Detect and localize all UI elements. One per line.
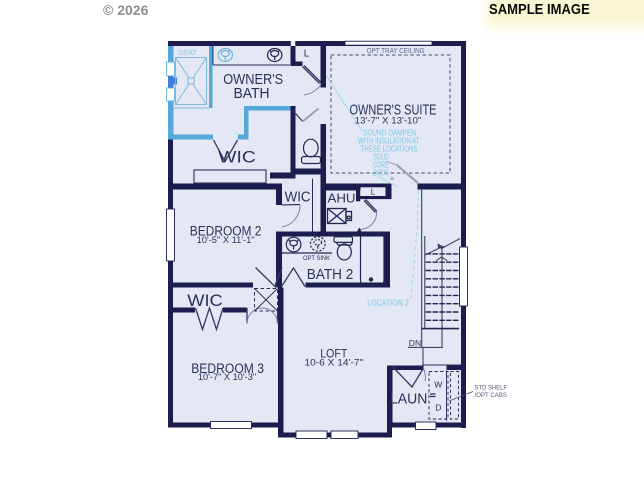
- svg-text:WIC: WIC: [285, 189, 311, 206]
- svg-text:W: W: [434, 380, 442, 390]
- svg-text:D: D: [435, 403, 441, 413]
- svg-text:STD SHELF: STD SHELF: [475, 385, 508, 392]
- svg-text:WIC: WIC: [187, 291, 222, 310]
- svg-text:WIC: WIC: [218, 148, 256, 167]
- svg-text:13'-7" X 13'-10": 13'-7" X 13'-10": [355, 115, 422, 125]
- svg-text:10'-7" X 10'-3": 10'-7" X 10'-3": [198, 372, 256, 382]
- svg-text:BATH: BATH: [234, 86, 270, 102]
- svg-text:L: L: [304, 49, 310, 60]
- svg-text:BATH 2: BATH 2: [307, 266, 354, 283]
- svg-text:10'-5" X 11'-1": 10'-5" X 11'-1": [197, 235, 255, 245]
- svg-text:OPT SINK: OPT SINK: [303, 255, 331, 262]
- svg-text:OPT TRAY CEILING: OPT TRAY CEILING: [367, 48, 425, 55]
- svg-text:L: L: [371, 188, 376, 197]
- svg-text:AHU: AHU: [328, 191, 356, 206]
- svg-text:THESE LOCATIONS: THESE LOCATIONS: [361, 145, 418, 154]
- svg-text:10-6 X 14'-7": 10-6 X 14'-7": [305, 358, 364, 369]
- svg-text:DN: DN: [409, 338, 421, 348]
- svg-text:/OPT CABS: /OPT CABS: [475, 392, 508, 399]
- svg-text:LAUN: LAUN: [390, 392, 427, 408]
- svg-text:LOCATION 2: LOCATION 2: [367, 299, 409, 308]
- svg-text:DOOR: DOOR: [373, 169, 388, 178]
- svg-text:SEAT: SEAT: [178, 50, 198, 57]
